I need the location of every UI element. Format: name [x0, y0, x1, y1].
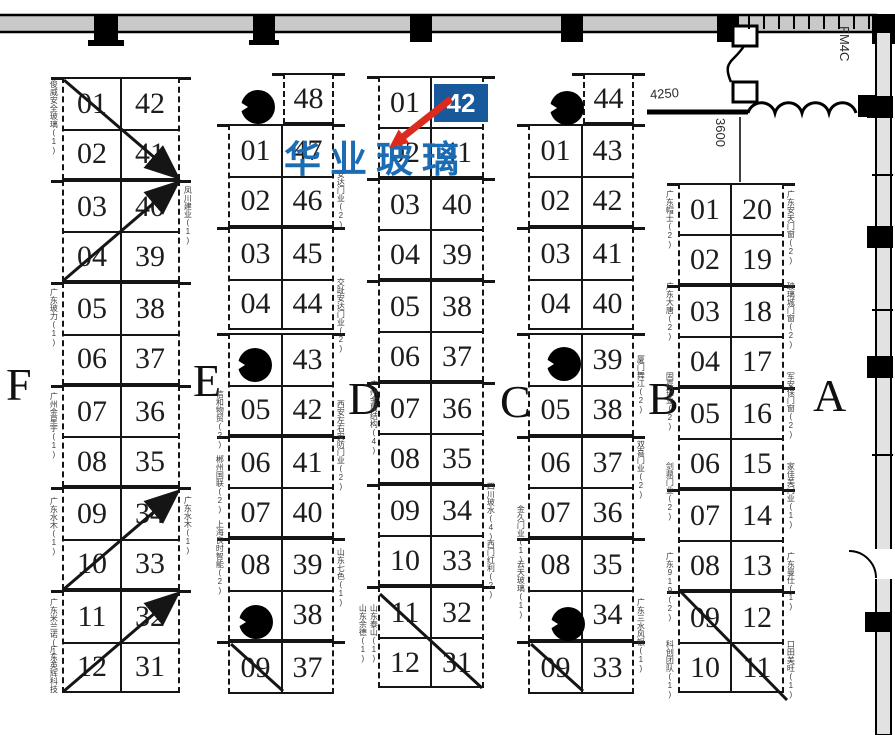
booth-row: 48: [285, 75, 332, 122]
booth-B-11[interactable]: 11: [732, 644, 782, 691]
booth-row: 0538: [530, 385, 632, 435]
booth-row: 0813: [680, 540, 782, 589]
pillar-icon: [551, 607, 585, 641]
pillar-icon: [547, 347, 581, 381]
booth-block-F: 11321231: [62, 590, 180, 693]
booth-C-36[interactable]: 36: [583, 489, 632, 536]
booth-row: 0417: [680, 336, 782, 385]
exhibitor-side-label: 山东泰山(1): [369, 604, 377, 663]
exhibitor-side-label: 郴州国联(2): [215, 455, 223, 514]
pillar-icon: [238, 348, 272, 382]
booth-B-05[interactable]: 05: [680, 389, 732, 438]
booth-row: 1132: [380, 588, 482, 637]
exhibitor-side-label: 固嘉铝业(2): [665, 372, 673, 431]
booth-row: 0740: [230, 487, 332, 536]
exhibitor-side-label: 广东919(2): [665, 552, 673, 622]
highlight-company-name: 华业玻璃: [284, 141, 468, 178]
booth-row: 1231: [380, 637, 482, 686]
booth-D-11[interactable]: 11: [380, 588, 432, 637]
booth-E-39[interactable]: 39: [283, 540, 332, 590]
booth-block-B: 01200219: [678, 183, 784, 285]
exhibitor-side-label: 广东大唐(2): [665, 282, 673, 341]
booth-block-E: 0937: [228, 641, 334, 694]
booth-F-06[interactable]: 06: [64, 336, 122, 384]
booth-B-04[interactable]: 04: [680, 338, 732, 385]
booth-B-19[interactable]: 19: [732, 236, 782, 283]
booth-row: 1231: [64, 642, 178, 692]
booth-row: 0934: [380, 486, 482, 535]
booth-row: 0440: [530, 279, 632, 329]
booth-C-44[interactable]: 44: [585, 75, 632, 122]
booth-block-F: 05380637: [62, 282, 180, 385]
booth-block-E: 48: [283, 73, 334, 124]
booth-C-01[interactable]: 01: [530, 126, 583, 176]
booth-F-10[interactable]: 10: [64, 541, 122, 589]
exhibitor-side-label: 云天玻璃(1): [516, 560, 524, 619]
booth-block-F: 01420241: [62, 77, 180, 180]
booth-C-37[interactable]: 37: [583, 438, 632, 487]
booth-E-08[interactable]: 08: [230, 540, 283, 590]
booth-E-43[interactable]: 43: [283, 335, 332, 385]
booth-row: 0341: [530, 229, 632, 279]
booth-D-38[interactable]: 38: [432, 282, 482, 331]
exhibitor-side-label: 口田美旺(1): [786, 640, 794, 699]
booth-block-F: 03400439: [62, 180, 180, 282]
booth-E-07[interactable]: 07: [230, 489, 283, 536]
dimension-label-3600: 3600: [714, 118, 727, 147]
booth-D-01[interactable]: 01: [380, 78, 432, 127]
booth-row: 0318: [680, 287, 782, 336]
exhibitor-side-label: 广东曼仕(1): [786, 552, 794, 611]
booth-D-32[interactable]: 32: [432, 588, 482, 637]
booth-block-B: 07140813: [678, 489, 784, 591]
booth-row: 0615: [680, 438, 782, 487]
booth-D-35[interactable]: 35: [432, 435, 482, 482]
booth-block-F: 09341033: [62, 487, 180, 590]
booth-E-09[interactable]: 09: [230, 643, 283, 692]
booth-F-12[interactable]: 12: [64, 644, 122, 692]
booth-C-33[interactable]: 33: [583, 643, 632, 692]
booth-C-35[interactable]: 35: [583, 540, 632, 590]
booth-C-34[interactable]: 34: [583, 592, 632, 640]
booth-D-39[interactable]: 39: [432, 231, 482, 278]
exhibitor-side-label: 广州金属结构(4): [369, 380, 377, 455]
booth-row: 1033: [64, 539, 178, 589]
booth-block-D: 05380637: [378, 280, 484, 382]
booth-C-07[interactable]: 07: [530, 489, 583, 536]
booth-B-03[interactable]: 03: [680, 287, 732, 336]
booth-B-18[interactable]: 18: [732, 287, 782, 336]
booth-row: 0340: [64, 182, 178, 231]
booth-row: 0444: [230, 279, 332, 329]
booth-B-15[interactable]: 15: [732, 440, 782, 487]
booth-C-03[interactable]: 03: [530, 229, 583, 279]
booth-block-E: 430542: [228, 333, 334, 436]
booth-E-41[interactable]: 41: [283, 438, 332, 487]
booth-row: 0641: [230, 438, 332, 487]
booth-row: 0242: [530, 176, 632, 226]
exhibitor-side-label: 广东水木(1): [183, 496, 191, 555]
booth-F-33[interactable]: 33: [122, 541, 178, 589]
booth-row: 0933: [530, 643, 632, 692]
booth-B-09[interactable]: 09: [680, 593, 732, 642]
booth-C-43[interactable]: 43: [583, 126, 632, 176]
booth-F-32[interactable]: 32: [122, 592, 178, 642]
booth-row: 0912: [680, 593, 782, 642]
exhibitor-side-label: 广东玻力(1): [49, 288, 57, 347]
booth-block-C: 01430242: [528, 124, 634, 227]
booth-D-05[interactable]: 05: [380, 282, 432, 331]
booth-B-06[interactable]: 06: [680, 440, 732, 487]
booth-E-46[interactable]: 46: [283, 178, 332, 226]
booth-B-13[interactable]: 13: [732, 542, 782, 589]
booth-row: 0340: [380, 180, 482, 229]
booth-F-42[interactable]: 42: [122, 79, 178, 129]
booth-E-37[interactable]: 37: [283, 643, 332, 692]
booth-row: 0637: [64, 334, 178, 384]
booth-row: 0143: [530, 126, 632, 176]
booth-D-10[interactable]: 10: [380, 537, 432, 584]
dimension-label-4250: 4250: [650, 86, 680, 101]
booth-row: 0835: [530, 540, 632, 590]
booth-C-08[interactable]: 08: [530, 540, 583, 590]
booth-B-02[interactable]: 02: [680, 236, 732, 283]
booth-B-07[interactable]: 07: [680, 491, 732, 540]
booth-C-04[interactable]: 04: [530, 281, 583, 329]
zone-label-F: F: [6, 362, 32, 408]
pillar-icon: [239, 605, 273, 639]
booth-E-01[interactable]: 01: [230, 126, 283, 176]
booth-F-05[interactable]: 05: [64, 284, 122, 334]
exhibitor-side-label: 厦门舞江(2): [636, 355, 644, 414]
booth-E-03[interactable]: 03: [230, 229, 283, 279]
exhibitor-side-label: 交趾安达门业(2): [336, 278, 344, 353]
booth-E-45[interactable]: 45: [283, 229, 332, 279]
booth-block-D: 03400439: [378, 178, 484, 280]
booth-row: 0219: [680, 234, 782, 283]
booth-B-20[interactable]: 20: [732, 185, 782, 234]
booth-row: 0736: [64, 387, 178, 436]
floor-plan: 42 华业玻璃 01420241034004390538063707360835…: [0, 0, 895, 735]
booth-row: 0516: [680, 389, 782, 438]
booth-row: 0937: [230, 643, 332, 692]
exhibitor-side-label: 山东七色(1): [336, 548, 344, 607]
booth-C-05[interactable]: 05: [530, 387, 583, 435]
booth-E-05[interactable]: 05: [230, 387, 283, 435]
booth-row: 1011: [680, 642, 782, 691]
pillar-icon: [550, 91, 584, 125]
booth-E-02[interactable]: 02: [230, 178, 283, 226]
booth-C-40[interactable]: 40: [583, 281, 632, 329]
booth-F-34[interactable]: 34: [122, 489, 178, 539]
booth-D-31[interactable]: 31: [432, 639, 482, 686]
booth-row: 0538: [64, 284, 178, 334]
booth-block-E: 03450444: [228, 227, 334, 330]
booth-block-B: 05160615: [678, 387, 784, 489]
booth-row: 0120: [680, 185, 782, 234]
booth-row: 0542: [230, 385, 332, 435]
booth-C-06[interactable]: 06: [530, 438, 583, 487]
booth-D-03[interactable]: 03: [380, 180, 432, 229]
booth-B-16[interactable]: 16: [732, 389, 782, 438]
booth-D-07[interactable]: 07: [380, 384, 432, 433]
booth-C-02[interactable]: 02: [530, 178, 583, 226]
booth-row: 0142: [64, 79, 178, 129]
exhibitor-side-label: 军安保门窗(2): [786, 372, 794, 439]
booth-F-40[interactable]: 40: [122, 182, 178, 231]
exhibitor-side-label: 广东水木(1): [49, 497, 57, 556]
booth-F-35[interactable]: 35: [122, 438, 178, 485]
booth-D-08[interactable]: 08: [380, 435, 432, 482]
exhibitor-side-label: 广州金星宇(1): [49, 392, 57, 459]
booth-F-31[interactable]: 31: [122, 644, 178, 692]
booth-row: 0839: [230, 540, 332, 590]
door-swing-icon: [849, 551, 876, 578]
exhibitor-side-label: 广东帽士(2): [665, 190, 673, 249]
booth-F-41[interactable]: 41: [122, 131, 178, 179]
exhibitor-side-label: 俊威安全玻璃(1): [49, 80, 57, 155]
booth-F-39[interactable]: 39: [122, 233, 178, 280]
booth-block-C: 03410440: [528, 227, 634, 330]
booth-C-38[interactable]: 38: [583, 387, 632, 435]
booth-row: 44: [585, 75, 632, 122]
booth-D-09[interactable]: 09: [380, 486, 432, 535]
exhibitor-side-label: 四川玻水(4): [486, 482, 494, 541]
exhibitor-side-label: 家佳美门业(1): [786, 462, 794, 529]
exhibitor-side-label: 剑鼎门业(2): [665, 462, 673, 521]
booth-D-36[interactable]: 36: [432, 384, 482, 433]
booth-B-12[interactable]: 12: [732, 593, 782, 642]
exhibitor-side-label: 山东余德(1): [358, 604, 366, 663]
booth-E-06[interactable]: 06: [230, 438, 283, 487]
booth-C-09[interactable]: 09: [530, 643, 583, 692]
booth-E-42[interactable]: 42: [283, 387, 332, 435]
booth-block-D: 09341033: [378, 484, 484, 586]
folding-door-icon: [748, 103, 856, 113]
booth-E-38[interactable]: 38: [283, 592, 332, 640]
booth-B-08[interactable]: 08: [680, 542, 732, 589]
booth-block-D: 11321231: [378, 586, 484, 688]
booth-D-06[interactable]: 06: [380, 333, 432, 380]
booth-F-09[interactable]: 09: [64, 489, 122, 539]
booth-row: 0439: [380, 229, 482, 278]
booth-C-41[interactable]: 41: [583, 229, 632, 279]
booth-F-38[interactable]: 38: [122, 284, 178, 334]
booth-block-C: 06370736: [528, 436, 634, 538]
booth-row: 1132: [64, 592, 178, 642]
booth-F-01[interactable]: 01: [64, 79, 122, 129]
booth-row: 0714: [680, 491, 782, 540]
booth-block-F: 07360835: [62, 385, 180, 487]
booth-row: 0439: [64, 231, 178, 280]
exhibitor-side-label: 上海良时智能(2): [215, 520, 223, 595]
booth-row: 0736: [380, 384, 482, 433]
exhibitor-side-label: 广东三水风银(1): [636, 598, 644, 673]
exhibitor-side-label: 广东英辉科技: [49, 645, 57, 693]
booth-D-12[interactable]: 12: [380, 639, 432, 686]
booth-B-01[interactable]: 01: [680, 185, 732, 234]
booth-E-40[interactable]: 40: [283, 489, 332, 536]
booth-F-07[interactable]: 07: [64, 387, 122, 436]
booth-row: 0835: [64, 436, 178, 485]
booth-C-42[interactable]: 42: [583, 178, 632, 226]
zone-label-A: A: [813, 373, 846, 419]
booth-row: 0345: [230, 229, 332, 279]
booth-row: 0835: [380, 433, 482, 482]
booth-row: 0934: [64, 489, 178, 539]
door-swing-icon: [728, 46, 744, 82]
zone-label-B: B: [648, 376, 679, 422]
booth-D-34[interactable]: 34: [432, 486, 482, 535]
booth-block-C: 44: [583, 73, 634, 124]
zone-label-C: C: [500, 379, 531, 425]
booth-D-33[interactable]: 33: [432, 537, 482, 584]
booth-E-48[interactable]: 48: [285, 75, 332, 122]
pillar-icon: [241, 90, 275, 124]
booth-F-08[interactable]: 08: [64, 438, 122, 485]
booth-F-03[interactable]: 03: [64, 182, 122, 231]
booth-row: 1033: [380, 535, 482, 584]
booth-row: 0637: [380, 331, 482, 380]
dimension-label-FM4C: FM4C: [838, 26, 851, 61]
booth-F-37[interactable]: 37: [122, 336, 178, 384]
hatched-wall: [748, 16, 874, 29]
booth-block-E: 06410740: [228, 436, 334, 538]
highlight-badge[interactable]: 42: [434, 84, 488, 122]
booth-row: 0246: [230, 176, 332, 226]
exhibitor-side-label: 西门红利(2): [486, 540, 494, 599]
booth-D-40[interactable]: 40: [432, 180, 482, 229]
booth-E-04[interactable]: 04: [230, 281, 283, 329]
booth-B-10[interactable]: 10: [680, 644, 732, 691]
exhibitor-side-label: 广东安天门窗(2): [786, 190, 794, 265]
booth-block-C: 390538: [528, 333, 634, 436]
booth-block-C: 0933: [528, 641, 634, 694]
exhibitor-side-label: 西安左右安防门业(2): [336, 400, 344, 491]
exhibitor-side-label: 双喜门业(2): [636, 440, 644, 499]
booth-C-39[interactable]: 39: [583, 335, 632, 385]
booth-row: 0538: [380, 282, 482, 331]
booth-F-04[interactable]: 04: [64, 233, 122, 280]
exhibitor-side-label: 玻璃城门窗(2): [786, 282, 794, 349]
booth-B-14[interactable]: 14: [732, 491, 782, 540]
exhibitor-side-label: 凤川建业(1): [183, 186, 191, 245]
booth-block-D: 07360835: [378, 382, 484, 484]
exhibitor-side-label: 金久门业(1): [516, 505, 524, 564]
booth-B-17[interactable]: 17: [732, 338, 782, 385]
exhibitor-side-label: 科创团队(1): [665, 640, 673, 699]
booth-F-11[interactable]: 11: [64, 592, 122, 642]
booth-D-37[interactable]: 37: [432, 333, 482, 380]
booth-block-B: 03180417: [678, 285, 784, 387]
booth-F-36[interactable]: 36: [122, 387, 178, 436]
booth-row: 0637: [530, 438, 632, 487]
booth-row: 0736: [530, 487, 632, 536]
booth-F-02[interactable]: 02: [64, 131, 122, 179]
booth-E-44[interactable]: 44: [283, 281, 332, 329]
booth-row: 0241: [64, 129, 178, 179]
exhibitor-side-label: 信和物贸(2): [215, 390, 223, 449]
booth-block-B: 09121011: [678, 591, 784, 693]
booth-D-04[interactable]: 04: [380, 231, 432, 278]
